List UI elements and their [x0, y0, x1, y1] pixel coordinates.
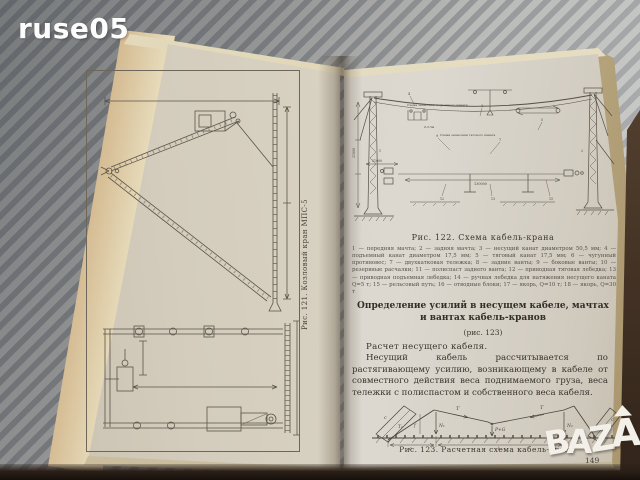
- fig123-label-T-right: T: [540, 405, 544, 411]
- fig122-traction-scheme-label: Схема запасовки тягового каната: [440, 133, 496, 137]
- fig122-num-7: 7: [499, 138, 501, 142]
- fig122-height-dim: 21000: [352, 148, 356, 158]
- bazar-letter-a1: A: [567, 422, 590, 461]
- fig122-num-2: 2: [581, 149, 583, 153]
- fig121-diagram: [87, 71, 299, 449]
- fig123-label-T1-left: T₁: [398, 424, 403, 430]
- fig122-num-4: 4: [408, 92, 410, 96]
- photo-of-open-book: Рис. 121. Козловый кран МПС-5: [0, 0, 640, 480]
- bazar-letter-a2: A: [610, 410, 639, 456]
- fig122-num-1: 1: [379, 149, 381, 153]
- fig122-num-9: 9: [436, 134, 438, 138]
- fig122-num-12: 12: [440, 197, 444, 201]
- fig123-label-N1: N₁: [438, 423, 445, 429]
- bazar-logo-watermark: BAZAR: [543, 413, 640, 478]
- fig122-num-3: 3: [481, 104, 483, 108]
- fig122-figure: Схема запасовки подъемного каната Схема …: [350, 80, 616, 232]
- fig123-label-T-left: T: [456, 406, 460, 412]
- fig121-frame: [86, 70, 300, 452]
- table-edge-bottom: [0, 464, 640, 480]
- seller-watermark-ruse05: ruse05: [18, 12, 129, 45]
- fig122-caption: Рис. 122. Схема кабель-крана: [352, 233, 614, 242]
- fig123-label-f: f: [413, 423, 417, 429]
- fig122-gauge-dim: 21000: [372, 159, 382, 163]
- fig122-structure: [354, 88, 614, 221]
- fig122-hoist-scheme-label: Схема запасовки подъемного каната: [407, 103, 468, 107]
- fig122-hook-range-dim: 0-3,5м: [424, 125, 435, 129]
- fig121-plan-view: [103, 321, 299, 435]
- fig122-num-5: 5: [541, 118, 543, 122]
- fig123-label-c-left: c: [384, 416, 387, 421]
- fig122-legend: 1 — передняя мачта; 2 — задняя мачта; 3 …: [352, 246, 616, 296]
- fig122-num-13: 13: [491, 197, 495, 201]
- bazar-letter-a2-glyph: A: [610, 410, 639, 456]
- fig122-diagram: Схема запасовки подъемного каната Схема …: [350, 80, 616, 232]
- section-figure-reference: (рис. 123): [354, 328, 612, 337]
- fig122-span-dim: 130000: [474, 182, 487, 186]
- fig121-caption: Рис. 121. Козловый кран МПС-5: [301, 130, 309, 330]
- fig121-side-view: [101, 93, 291, 311]
- fig122-num-15: 15: [549, 197, 553, 201]
- paragraph-lead: Расчет несущего кабеля.: [352, 342, 610, 352]
- paragraph-body: Несущий кабель рассчитывается по растяги…: [352, 353, 608, 399]
- section-heading: Определение усилий в несущем кабеле, мач…: [354, 301, 612, 324]
- fig123-label-PG: P+G: [494, 427, 506, 433]
- bazar-roof-icon: [613, 404, 632, 416]
- fig122-labels: Схема запасовки подъемного каната Схема …: [352, 92, 583, 201]
